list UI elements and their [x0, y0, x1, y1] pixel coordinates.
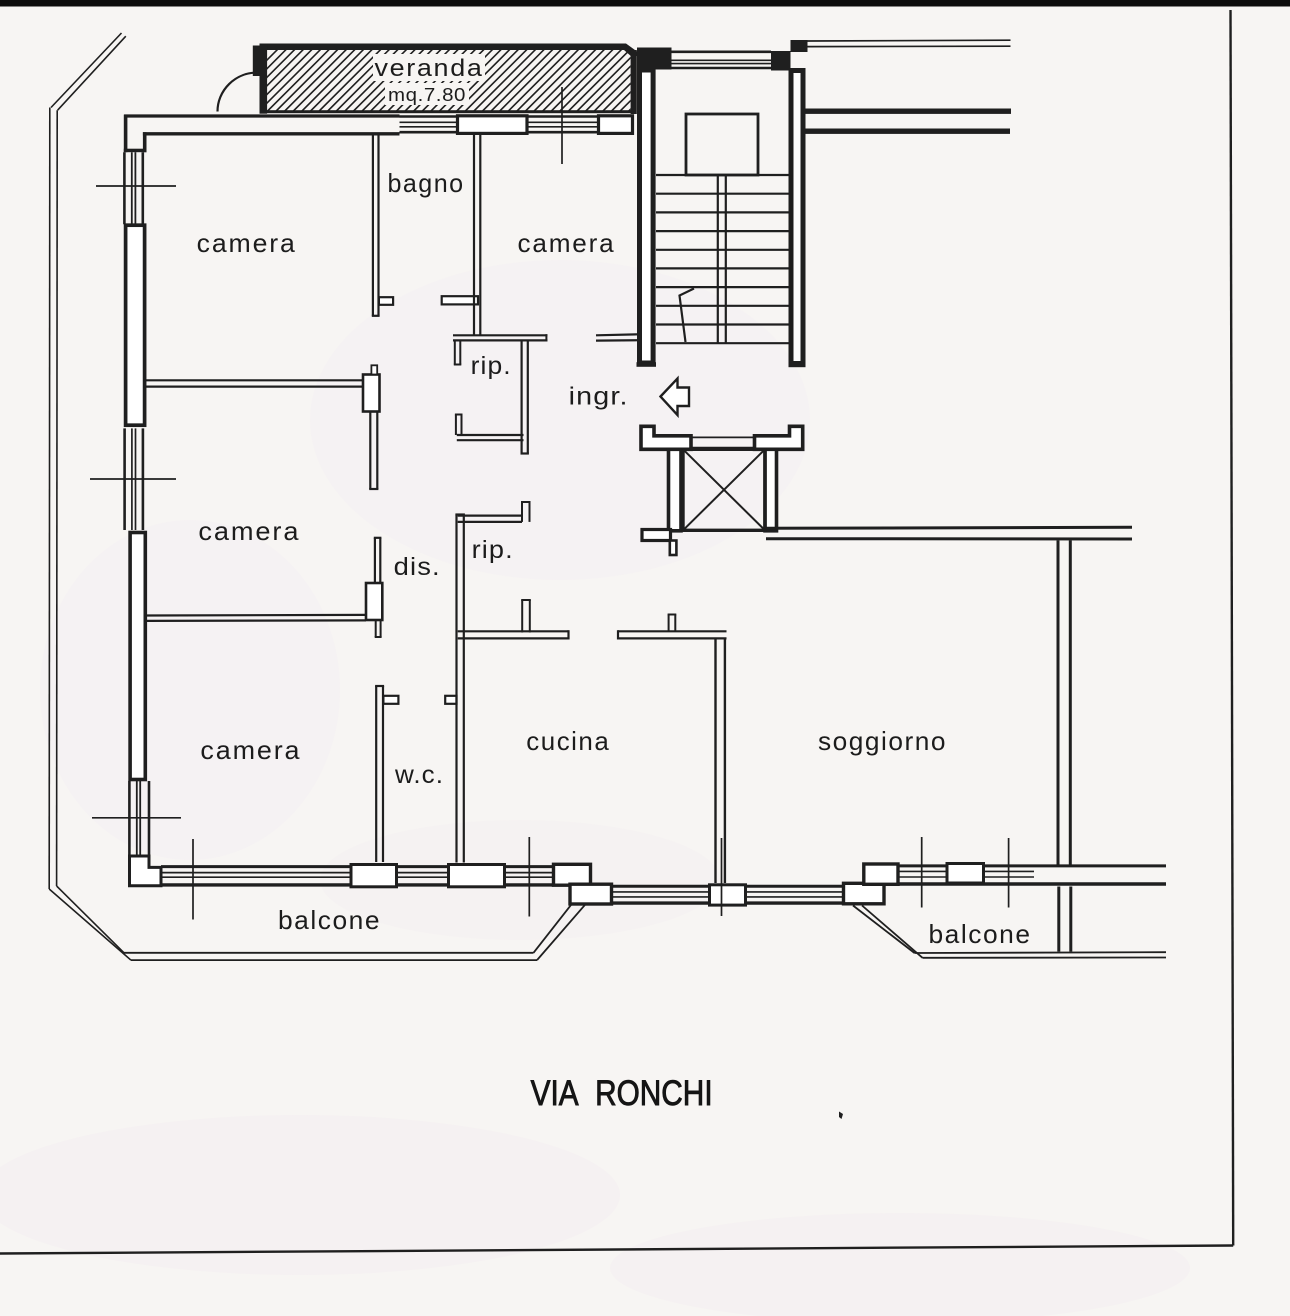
- svg-text:rip.: rip.: [472, 536, 514, 564]
- svg-text:ingr.: ingr.: [569, 383, 629, 411]
- svg-text:camera: camera: [197, 228, 297, 258]
- svg-text:camera: camera: [518, 228, 616, 258]
- svg-text:rip.: rip.: [471, 352, 512, 380]
- svg-text:balcone: balcone: [929, 919, 1032, 949]
- svg-text:VIA RONCHI: VIA RONCHI: [531, 1074, 713, 1113]
- svg-text:veranda: veranda: [375, 55, 484, 82]
- svg-text:cucina: cucina: [526, 726, 610, 756]
- svg-text:balcone: balcone: [278, 905, 381, 935]
- svg-text:camera: camera: [200, 735, 301, 765]
- svg-text:soggiorno: soggiorno: [818, 726, 947, 756]
- svg-text:w.c.: w.c.: [394, 761, 444, 789]
- svg-text:dis.: dis.: [394, 553, 441, 581]
- svg-text:mq.7.80: mq.7.80: [388, 85, 466, 105]
- svg-text:bagno: bagno: [388, 168, 465, 198]
- svg-text:camera: camera: [198, 516, 300, 546]
